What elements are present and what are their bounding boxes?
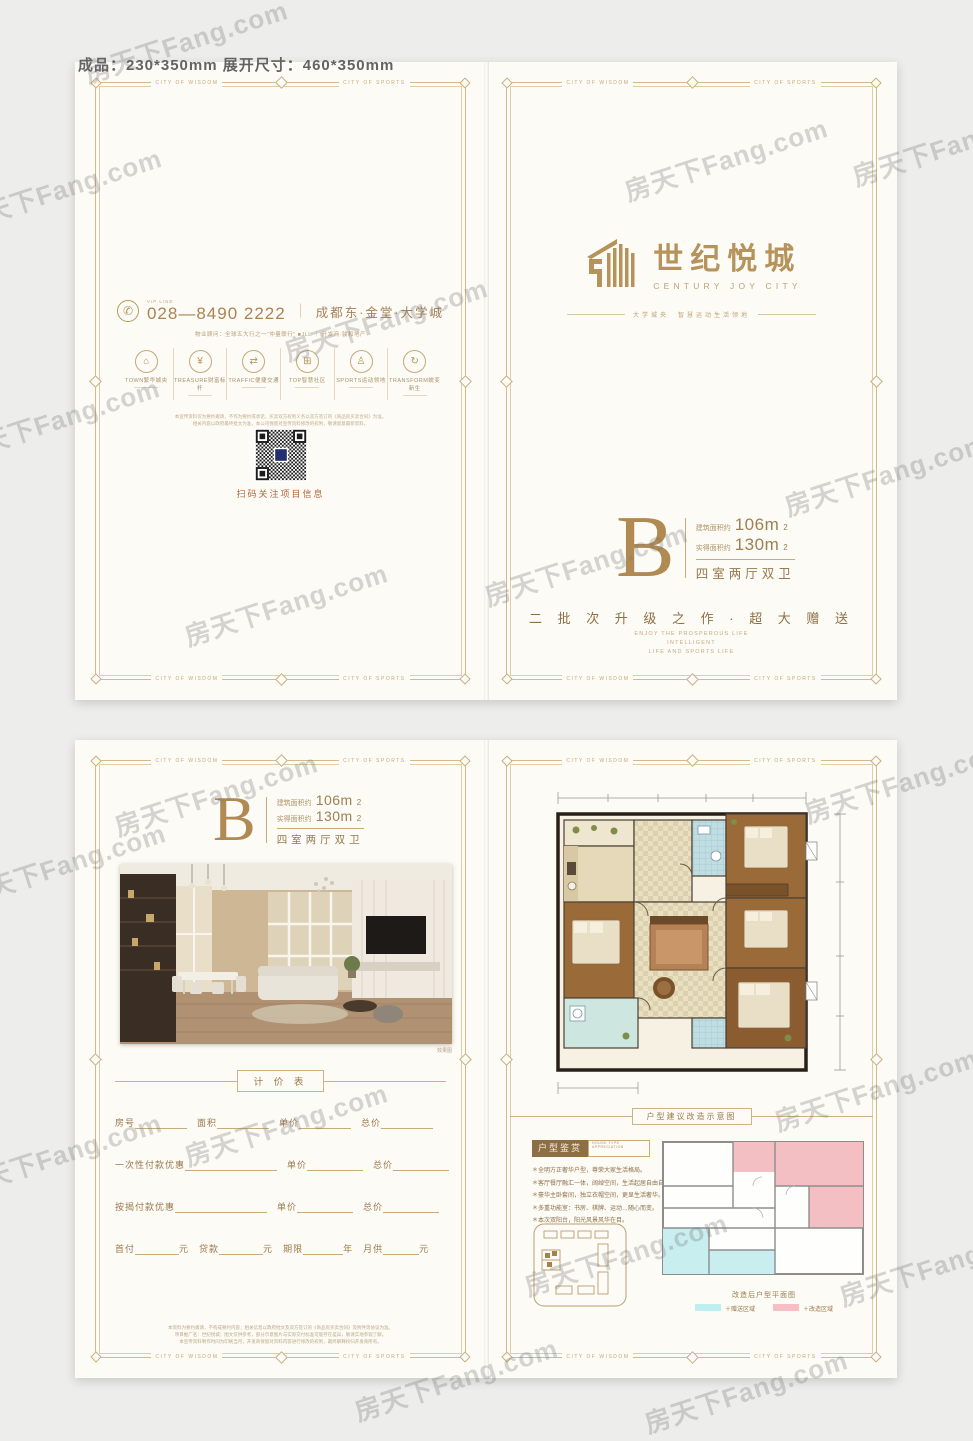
area-label: 建筑面积约 xyxy=(277,798,312,808)
renovation-divider-text: 户型建议改造示意图 xyxy=(632,1108,752,1125)
border-text: CITY OF WISDOM xyxy=(562,675,633,683)
field-label: 单价 xyxy=(279,1116,299,1129)
legal-line: 本宣传资料制作时间为印刷当月，开发商保留对资料内容进行修改的权利，最终解释权归开… xyxy=(179,1339,382,1344)
living-room-photo xyxy=(120,864,452,1044)
corner-ornament xyxy=(459,77,470,88)
field-label: 期限 xyxy=(283,1242,303,1255)
tagline-text: 大学城央 智慧运动生活领地 xyxy=(633,310,750,319)
front-cover-page: CITY OF WISDOM CITY OF SPORTS CITY OF WI… xyxy=(486,62,897,700)
price-row-1: 房号 面积 单价 总价 xyxy=(115,1116,452,1129)
feature-top: ⊞ TOP智慧社区 xyxy=(281,348,335,400)
renovation-divider: 户型建议改造示意图 xyxy=(510,1108,873,1125)
legal-line: 本资料为要约邀请，不构成要约内容；相关信息以政府批文及双方签订的《商品房买卖合同… xyxy=(168,1325,393,1330)
field-label: 面积 xyxy=(197,1116,217,1129)
border-text: CITY OF SPORTS xyxy=(750,79,821,87)
cover-slogan-en: ENJOY THE PROSPEROUS LIFE INTELLIGENT LI… xyxy=(486,630,897,657)
blank-line[interactable] xyxy=(297,1202,353,1213)
unit-b-block: B 建筑面积约 106m2 实得面积约 130m2 四室两厅双卫 xyxy=(213,792,364,847)
fold-line xyxy=(484,740,489,1378)
unit-suffix: 元 xyxy=(263,1242,273,1255)
outer-spread-sheet: CITY OF WISDOM CITY OF SPORTS CITY OF WI… xyxy=(75,62,897,700)
border-text: CITY OF WISDOM xyxy=(562,757,633,765)
corner-ornament xyxy=(459,1351,470,1362)
diamond-ornament xyxy=(686,76,699,89)
agency-line: 物业顾问：全球五大行之一“仲量联行” ■JLL ｜ 开发商·骏和地产 xyxy=(75,330,486,338)
diamond-ornament xyxy=(89,375,102,388)
unit-layout: 四室两厅双卫 xyxy=(696,563,795,582)
diamond-ornament xyxy=(459,375,472,388)
diamond-ornament xyxy=(500,1053,513,1066)
phone-number: 028—8490 2222 xyxy=(147,304,286,323)
area-label: 建筑面积约 xyxy=(696,523,731,533)
appreciation-bullets: ＊全明方正奢华户型，尊荣大家生活格局。 ＊客厅餐厅融汇一体，阔绰空间，生活起居自… xyxy=(532,1165,650,1228)
bullet: ＊多重功能室：书房、棋牌、运动…随心而变。 xyxy=(532,1203,650,1216)
price-row-3: 按揭付款优惠 单价 总价 xyxy=(115,1200,452,1213)
diamond-ornament xyxy=(275,76,288,89)
corner-ornament xyxy=(90,755,101,766)
blank-line[interactable] xyxy=(185,1160,277,1171)
border-text: CITY OF WISDOM xyxy=(151,79,222,87)
plan-legend: ＋赠送区域 ＋改造区域 xyxy=(649,1304,879,1313)
field-label: 总价 xyxy=(361,1116,381,1129)
legal-line: 项目推广名：世纪悦城；图文仅供参考，部分示意图片与实际交付标准可能存在差异，敬请… xyxy=(175,1332,387,1337)
qr-caption: 扫码关注项目信息 xyxy=(75,487,486,500)
pink-swatch xyxy=(773,1304,799,1311)
appreciation-block: 户型鉴赏 HOUSE TYPE APPRECIATION ＊全明方正奢华户型，尊… xyxy=(532,1140,650,1228)
feature-traffic: ⇄ TRAFFIC便捷交通 xyxy=(227,348,281,400)
renovated-plan-caption: 改造后户型平面图 xyxy=(649,1290,879,1300)
sup: 2 xyxy=(783,543,787,552)
decorative-border: CITY OF WISDOM CITY OF SPORTS CITY OF WI… xyxy=(95,760,466,1358)
field-label: 总价 xyxy=(363,1200,383,1213)
sup: 2 xyxy=(783,523,787,532)
cyan-swatch xyxy=(695,1304,721,1311)
diamond-ornament xyxy=(686,754,699,767)
renovated-floor-plan xyxy=(649,1132,879,1290)
border-text: CITY OF WISDOM xyxy=(562,1353,633,1361)
qr-code xyxy=(254,428,308,482)
border-text: CITY OF WISDOM xyxy=(562,79,633,87)
unit-suffix: 元 xyxy=(179,1242,189,1255)
legend-label: ＋赠送区域 xyxy=(725,1307,755,1313)
legend-label: ＋改造区域 xyxy=(803,1307,833,1313)
sup: 2 xyxy=(357,814,361,823)
photo-caption: 效果图 xyxy=(120,1047,452,1054)
diamond-ornament xyxy=(275,673,288,686)
diamond-ornament xyxy=(686,673,699,686)
corner-ornament xyxy=(501,77,512,88)
blank-line[interactable] xyxy=(307,1160,363,1171)
feature-icons-row: ⌂ TOWN繁华城央 ¥ TREASURE财富标杆 ⇄ TRAFFIC便捷交通 … xyxy=(120,348,441,400)
border-text: CITY OF SPORTS xyxy=(339,1353,410,1361)
corner-ornament xyxy=(90,673,101,684)
brand-name-cn: 世纪悦城 xyxy=(653,234,801,278)
bullet: ＊全明方正奢华户型，尊荣大家生活格局。 xyxy=(532,1165,650,1178)
border-text: CITY OF WISDOM xyxy=(151,1353,222,1361)
field-label: 按揭付款优惠 xyxy=(115,1200,175,1213)
diamond-ornament xyxy=(89,1053,102,1066)
feature-label: TRAFFIC便捷交通 xyxy=(227,376,280,384)
area-value: 130m xyxy=(735,535,780,555)
corner-ornament xyxy=(870,77,881,88)
blank-line[interactable] xyxy=(393,1160,449,1171)
border-text: CITY OF WISDOM xyxy=(151,675,222,683)
field-label: 房号 xyxy=(115,1116,135,1129)
field-label: 一次性付款优惠 xyxy=(115,1158,185,1171)
border-text: CITY OF SPORTS xyxy=(339,757,410,765)
appreciation-sub: APPRECIATION xyxy=(592,1146,646,1150)
appreciation-title: 户型鉴赏 xyxy=(532,1140,588,1157)
field-label: 总价 xyxy=(373,1158,393,1171)
unit-letter: B xyxy=(616,512,675,584)
mini-disclaimer: 本宣传资料仅为要约邀请，不作为要约或承诺，买卖双方权利义务以双方签订的《商品房买… xyxy=(135,414,426,427)
corner-ornament xyxy=(90,1351,101,1362)
blank-line[interactable] xyxy=(303,1244,343,1255)
price-table-title: 计 价 表 xyxy=(115,1070,446,1092)
feature-label: TRANSFORM蜕变新生 xyxy=(388,376,441,392)
bullet: ＊客厅餐厅融汇一体，阔绰空间，生活起居自由自在。 xyxy=(532,1178,650,1191)
corner-ornament xyxy=(501,673,512,684)
back-cover-page: CITY OF WISDOM CITY OF SPORTS CITY OF WI… xyxy=(75,62,486,700)
legend-item-gift: ＋赠送区域 xyxy=(695,1304,755,1313)
unit-b-block: B 建筑面积约 106m2 实得面积约 130m2 四室两厅双卫 xyxy=(616,512,795,584)
sports-icon: ♙ xyxy=(350,350,373,373)
feature-label: TREASURE财富标杆 xyxy=(174,376,227,392)
slogan-en-line: LIFE AND SPORTS LIFE xyxy=(486,648,897,657)
corner-ornament xyxy=(870,755,881,766)
unit-layout: 四室两厅双卫 xyxy=(277,832,364,847)
field-label: 单价 xyxy=(287,1158,307,1171)
mini-disclaimer-line: 相关内容以政府最终批文为准，本公司保留对宣传资料修改的权利，敬请留意最新资料。 xyxy=(193,421,369,426)
divider-line xyxy=(266,797,267,843)
legal-disclaimer: 本资料为要约邀请，不构成要约内容；相关信息以政府批文及双方签订的《商品房买卖合同… xyxy=(115,1324,446,1345)
diamond-ornament xyxy=(275,754,288,767)
blank-line[interactable] xyxy=(175,1202,267,1213)
area-label: 实得面积约 xyxy=(696,543,731,553)
brand-logo: 世纪悦城 CENTURY JOY CITY xyxy=(486,234,897,291)
price-row-4: 首付元 贷款元 期限年 月供元 xyxy=(115,1242,452,1255)
border-text: CITY OF SPORTS xyxy=(339,675,410,683)
slogan-en-line: ENJOY THE PROSPEROUS LIFE xyxy=(486,630,897,639)
divider-bar: ｜ xyxy=(294,301,308,321)
border-text: CITY OF WISDOM xyxy=(151,757,222,765)
location-text: 成都东·金堂·大学城 xyxy=(316,302,444,321)
price-row-2: 一次性付款优惠 单价 总价 xyxy=(115,1158,452,1171)
legend-item-renovate: ＋改造区域 xyxy=(773,1304,833,1313)
sup: 2 xyxy=(357,798,361,807)
unit-letter: B xyxy=(213,793,256,845)
brand-name-en: CENTURY JOY CITY xyxy=(653,281,801,291)
corner-ornament xyxy=(90,77,101,88)
fold-line xyxy=(484,62,489,700)
unit-suffix: 元 xyxy=(419,1242,429,1255)
field-label: 月供 xyxy=(363,1242,383,1255)
corner-ornament xyxy=(870,673,881,684)
diamond-ornament xyxy=(275,1351,288,1364)
diamond-ornament xyxy=(870,375,883,388)
feature-town: ⌂ TOWN繁华城央 xyxy=(120,348,174,400)
field-label: 首付 xyxy=(115,1242,135,1255)
decorative-border: CITY OF WISDOM CITY OF SPORTS CITY OF WI… xyxy=(506,82,877,680)
traffic-icon: ⇄ xyxy=(242,350,265,373)
area-label: 实得面积约 xyxy=(277,814,312,824)
inner-spread-sheet: CITY OF WISDOM CITY OF SPORTS CITY OF WI… xyxy=(75,740,897,1378)
design-proof-canvas: 成品：230*350mm 展开尺寸：460*350mm CITY OF WISD… xyxy=(0,0,973,1400)
field-label: 贷款 xyxy=(199,1242,219,1255)
area-value: 106m xyxy=(735,515,780,535)
border-text: CITY OF SPORTS xyxy=(750,675,821,683)
feature-label: SPORTS运动领地 xyxy=(335,376,388,384)
feature-treasure: ¥ TREASURE财富标杆 xyxy=(174,348,228,400)
corner-ornament xyxy=(870,1351,881,1362)
border-text: CITY OF SPORTS xyxy=(750,757,821,765)
print-size-note: 成品：230*350mm 展开尺寸：460*350mm xyxy=(78,54,394,75)
cover-slogan: 二 批 次 升 级 之 作 · 超 大 赠 送 xyxy=(486,608,897,627)
transform-icon: ↻ xyxy=(403,350,426,373)
blank-line[interactable] xyxy=(219,1244,263,1255)
inner-left-page: CITY OF WISDOM CITY OF SPORTS CITY OF WI… xyxy=(75,740,486,1378)
border-text: CITY OF SPORTS xyxy=(750,1353,821,1361)
area-value: 106m xyxy=(316,792,353,808)
feature-label: TOWN繁华城央 xyxy=(120,376,173,384)
border-text: CITY OF SPORTS xyxy=(339,79,410,87)
diamond-ornament xyxy=(500,375,513,388)
feature-transform: ↻ TRANSFORM蜕变新生 xyxy=(388,348,441,400)
field-label: 单价 xyxy=(277,1200,297,1213)
brand-tagline: 大学城央 智慧运动生活领地 xyxy=(486,310,897,319)
blank-line[interactable] xyxy=(381,1118,433,1129)
floor-plan xyxy=(538,786,882,1100)
mini-disclaimer-line: 本宣传资料仅为要约邀请，不作为要约或承诺，买卖双方权利义务以双方签订的《商品房买… xyxy=(175,414,387,419)
inner-right-page: CITY OF WISDOM CITY OF SPORTS CITY OF WI… xyxy=(486,740,897,1378)
price-table-title-text: 计 价 表 xyxy=(237,1070,325,1092)
blank-line[interactable] xyxy=(299,1118,351,1129)
diamond-ornament xyxy=(686,1351,699,1364)
contact-block: ✆ VIP LINE 028—8490 2222 ｜ 成都东·金堂·大学城 xyxy=(75,300,486,323)
treasure-icon: ¥ xyxy=(189,350,212,373)
community-icon: ⊞ xyxy=(296,350,319,373)
phone-icon: ✆ xyxy=(117,300,139,322)
slogan-en-line: INTELLIGENT xyxy=(486,639,897,648)
blank-line[interactable] xyxy=(217,1118,269,1129)
blank-line[interactable] xyxy=(135,1244,179,1255)
divider-line xyxy=(685,518,686,578)
bullet: ＊豪华主卧套间，独立衣帽空间，更显生活奢华。 xyxy=(532,1190,650,1203)
feature-sports: ♙ SPORTS运动领地 xyxy=(335,348,389,400)
unit-suffix: 年 xyxy=(343,1242,353,1255)
diamond-ornament xyxy=(459,1053,472,1066)
brand-logo-mark xyxy=(581,235,643,291)
area-value: 130m xyxy=(316,808,353,824)
corner-ornament xyxy=(501,755,512,766)
blank-line[interactable] xyxy=(383,1244,419,1255)
town-icon: ⌂ xyxy=(135,350,158,373)
corner-ornament xyxy=(501,1351,512,1362)
corner-ornament xyxy=(459,755,470,766)
feature-label: TOP智慧社区 xyxy=(281,376,334,384)
blank-line[interactable] xyxy=(383,1202,439,1213)
site-plan xyxy=(532,1222,628,1312)
blank-line[interactable] xyxy=(135,1118,187,1129)
corner-ornament xyxy=(459,673,470,684)
